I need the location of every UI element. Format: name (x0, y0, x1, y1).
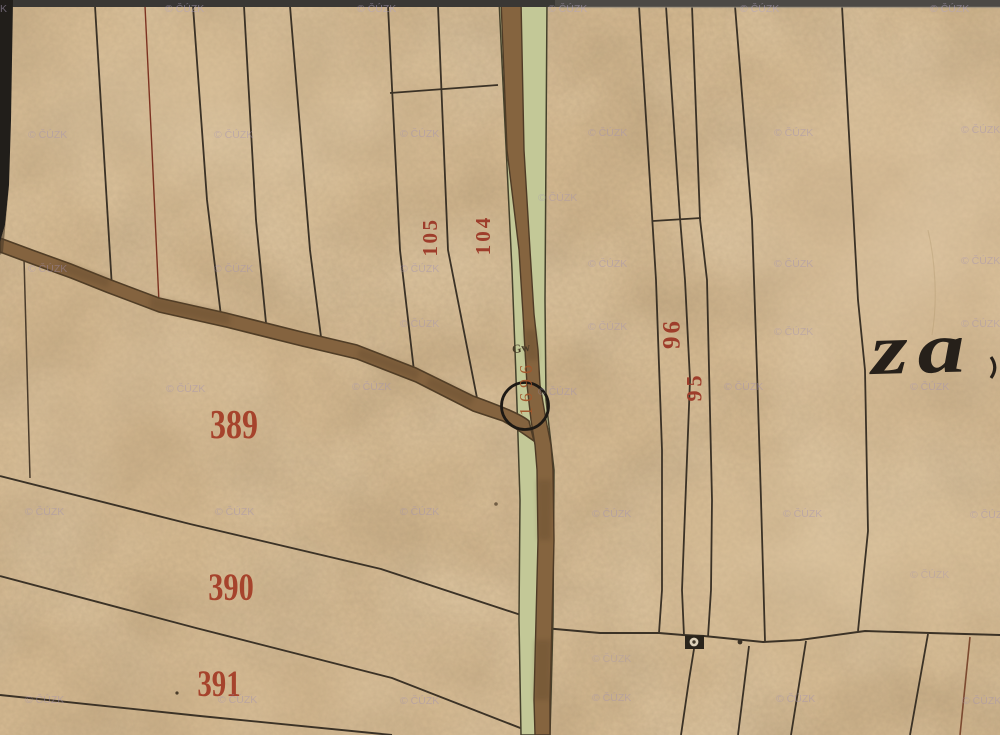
svg-text:Gw: Gw (511, 340, 531, 356)
svg-text:© ČÚZK: © ČÚZK (166, 382, 205, 395)
svg-text:© ČÚZK: © ČÚZK (910, 568, 949, 581)
svg-text:© ČÚZK: © ČÚZK (538, 385, 577, 398)
svg-text:389: 389 (210, 401, 258, 447)
svg-text:© ČÚZK: © ČÚZK (592, 507, 631, 520)
svg-text:© ČÚZK: © ČÚZK (352, 380, 391, 393)
svg-text:© ČÚZK: © ČÚZK (776, 692, 815, 705)
svg-text:© ČÚZK: © ČÚZK (215, 505, 254, 518)
svg-text:96: 96 (659, 318, 686, 349)
svg-text:© ČÚZK: © ČÚZK (400, 317, 439, 330)
svg-text:© ČÚZK: © ČÚZK (538, 191, 577, 204)
svg-text:© ČÚZK: © ČÚZK (588, 257, 627, 270)
svg-text:© ČÚZK: © ČÚZK (592, 691, 631, 704)
svg-text:© ČÚZK: © ČÚZK (214, 128, 253, 141)
svg-text:© ČÚZK: © ČÚZK (740, 2, 779, 15)
svg-text:© ČÚZK: © ČÚZK (548, 2, 587, 15)
svg-text:© ČÚZK: © ČÚZK (28, 128, 67, 141)
svg-text:© ČÚZK: © ČÚZK (165, 2, 204, 15)
svg-text:1696: 1696 (516, 360, 536, 416)
svg-text:95: 95 (682, 372, 707, 402)
svg-text:© ČÚZK: © ČÚZK (774, 325, 813, 338)
svg-text:© ČÚZK: © ČÚZK (910, 380, 949, 393)
svg-text:© ČÚZK: © ČÚZK (25, 505, 64, 518)
svg-text:© ČÚZK: © ČÚZK (588, 320, 627, 333)
svg-text:© ČÚZK: © ČÚZK (28, 262, 67, 275)
svg-text:© ČÚZK: © ČÚZK (961, 254, 1000, 267)
svg-text:© ČÚZK: © ČÚZK (218, 693, 257, 706)
svg-text:© ČÚZK: © ČÚZK (961, 317, 1000, 330)
svg-text:104: 104 (471, 215, 495, 256)
svg-text:© ČÚZK: © ČÚZK (400, 694, 439, 707)
svg-text:© ČÚZK: © ČÚZK (724, 380, 763, 393)
svg-text:© ČÚZK: © ČÚZK (357, 2, 396, 15)
svg-text:© ČÚZK: © ČÚZK (961, 123, 1000, 136)
svg-text:© ČÚZK: © ČÚZK (774, 126, 813, 139)
svg-text:© ČÚZK: © ČÚZK (970, 508, 1000, 521)
svg-text:za: za (866, 308, 976, 390)
svg-text:© ČÚZK: © ČÚZK (930, 2, 969, 15)
svg-text:© ČÚZK: © ČÚZK (588, 126, 627, 139)
svg-text:© ČÚZK: © ČÚZK (592, 652, 631, 665)
svg-text:© ČÚZK: © ČÚZK (962, 694, 1000, 707)
svg-text:© ČÚZK: © ČÚZK (774, 257, 813, 270)
svg-text:K: K (0, 3, 7, 15)
svg-text:© ČÚZK: © ČÚZK (783, 507, 822, 520)
svg-text:© ČÚZK: © ČÚZK (400, 505, 439, 518)
svg-text:105: 105 (418, 218, 442, 257)
svg-text:© ČÚZK: © ČÚZK (400, 127, 439, 140)
svg-text:© ČÚZK: © ČÚZK (25, 693, 64, 706)
svg-text:© ČÚZK: © ČÚZK (400, 262, 439, 275)
svg-text:© ČÚZK: © ČÚZK (214, 262, 253, 275)
svg-text:390: 390 (208, 565, 254, 608)
